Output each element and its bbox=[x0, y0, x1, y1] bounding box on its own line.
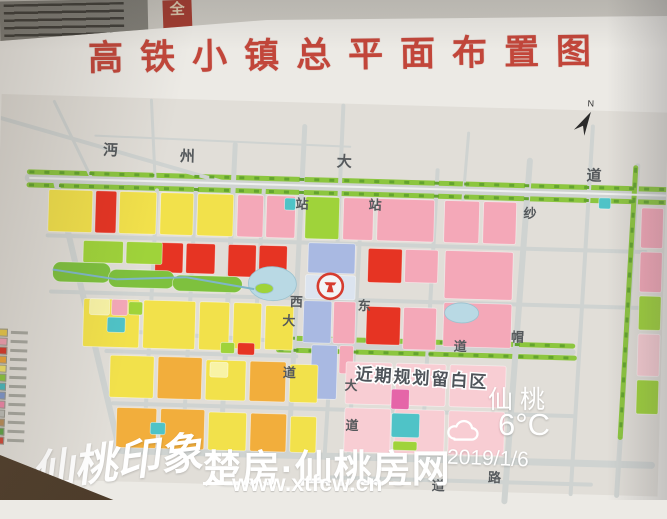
legend-text bbox=[8, 412, 25, 416]
map-parcel bbox=[107, 317, 125, 332]
road-label: 道 bbox=[345, 418, 358, 433]
road-label: 大 bbox=[282, 313, 295, 328]
url-dash-right bbox=[389, 482, 411, 485]
legend-swatch bbox=[0, 364, 7, 372]
map-parcel bbox=[305, 197, 340, 240]
legend-swatch bbox=[0, 427, 5, 435]
map-parcel bbox=[367, 248, 402, 283]
legend-text bbox=[9, 385, 26, 389]
map-parcel bbox=[249, 361, 286, 402]
legend-text bbox=[10, 349, 27, 353]
map-parcel bbox=[636, 380, 659, 415]
legend-text bbox=[8, 421, 25, 425]
map-parcel bbox=[143, 300, 196, 349]
map-parcel bbox=[284, 198, 295, 210]
legend-text bbox=[7, 439, 24, 443]
legend-text bbox=[11, 340, 28, 344]
legend-text bbox=[7, 430, 24, 434]
map-parcel bbox=[160, 193, 194, 236]
legend-text bbox=[11, 331, 28, 335]
map-legend bbox=[0, 327, 36, 445]
map-parcel bbox=[391, 413, 420, 438]
legend-swatch bbox=[0, 391, 6, 399]
road-label: 道 bbox=[283, 365, 296, 380]
road-label: 站 bbox=[295, 196, 308, 211]
map-parcel bbox=[119, 191, 157, 234]
map-parcel bbox=[95, 191, 117, 234]
pond bbox=[255, 283, 273, 293]
road-label: 纱 bbox=[523, 206, 536, 221]
map-parcel bbox=[228, 244, 257, 277]
legend-swatch bbox=[0, 346, 7, 354]
road-label: 路 bbox=[488, 470, 502, 485]
map-parcel bbox=[366, 306, 401, 345]
map-parcel bbox=[639, 252, 662, 293]
map-parcel bbox=[444, 200, 480, 243]
map-parcel bbox=[403, 307, 437, 350]
map-parcel bbox=[157, 357, 202, 400]
watermark-site-url: www.xtfcw.cn bbox=[196, 470, 418, 497]
weather-date: 2019/1/6 bbox=[447, 446, 530, 473]
map-parcel bbox=[128, 302, 142, 315]
weather-temperature: 6°C bbox=[498, 407, 550, 443]
legend-text bbox=[9, 394, 26, 398]
map-parcel bbox=[220, 342, 234, 353]
legend-text bbox=[10, 367, 27, 371]
road-label: 沔 bbox=[103, 142, 118, 159]
map-parcel bbox=[89, 299, 109, 316]
road-label: 西 bbox=[290, 294, 303, 309]
map-parcel bbox=[641, 208, 664, 249]
map-parcel bbox=[210, 362, 228, 377]
map-parcel bbox=[444, 250, 513, 300]
legend-swatch bbox=[0, 436, 4, 444]
legend-text bbox=[9, 376, 26, 380]
road-label: 东 bbox=[358, 298, 371, 313]
legend-swatch bbox=[0, 355, 7, 363]
road-label: 道 bbox=[453, 339, 466, 354]
url-dash-left bbox=[203, 482, 225, 485]
legend-swatch bbox=[0, 373, 6, 381]
map-parcel bbox=[237, 343, 254, 355]
map-parcel bbox=[333, 301, 356, 344]
north-label: N bbox=[587, 98, 594, 108]
map-parcel bbox=[111, 299, 127, 315]
map-parcel bbox=[197, 194, 234, 237]
map-parcel bbox=[237, 195, 264, 238]
legend-text bbox=[8, 403, 25, 407]
map-parcel bbox=[404, 249, 438, 283]
map-parcel bbox=[377, 199, 435, 243]
legend-swatch bbox=[0, 400, 6, 408]
legend-swatch bbox=[0, 382, 6, 390]
legend-swatch bbox=[0, 328, 8, 336]
map-parcel bbox=[186, 243, 216, 274]
map-parcel bbox=[109, 355, 154, 398]
map-parcel bbox=[303, 301, 332, 344]
road-label: 州 bbox=[179, 148, 195, 165]
map-parcel bbox=[391, 389, 410, 409]
map-parcel bbox=[599, 198, 611, 209]
map-parcel bbox=[52, 262, 111, 284]
road-label: 道 bbox=[586, 166, 602, 184]
url-text: www.xtfcw.cn bbox=[232, 470, 382, 497]
legend-text bbox=[10, 358, 27, 362]
road-label: 站 bbox=[368, 197, 381, 212]
map-parcel bbox=[637, 334, 660, 377]
map-parcel bbox=[638, 296, 661, 331]
map-parcel bbox=[483, 202, 517, 245]
legend-swatch bbox=[0, 418, 5, 426]
map-parcel bbox=[48, 189, 93, 232]
map-parcel bbox=[126, 242, 163, 265]
legend-swatch bbox=[0, 409, 5, 417]
map-parcel bbox=[83, 240, 124, 263]
road-label: 帽 bbox=[511, 329, 524, 344]
map-parcel bbox=[308, 243, 356, 274]
legend-swatch bbox=[0, 337, 8, 345]
map-parcel bbox=[233, 303, 262, 350]
road-label: 大 bbox=[337, 152, 353, 170]
